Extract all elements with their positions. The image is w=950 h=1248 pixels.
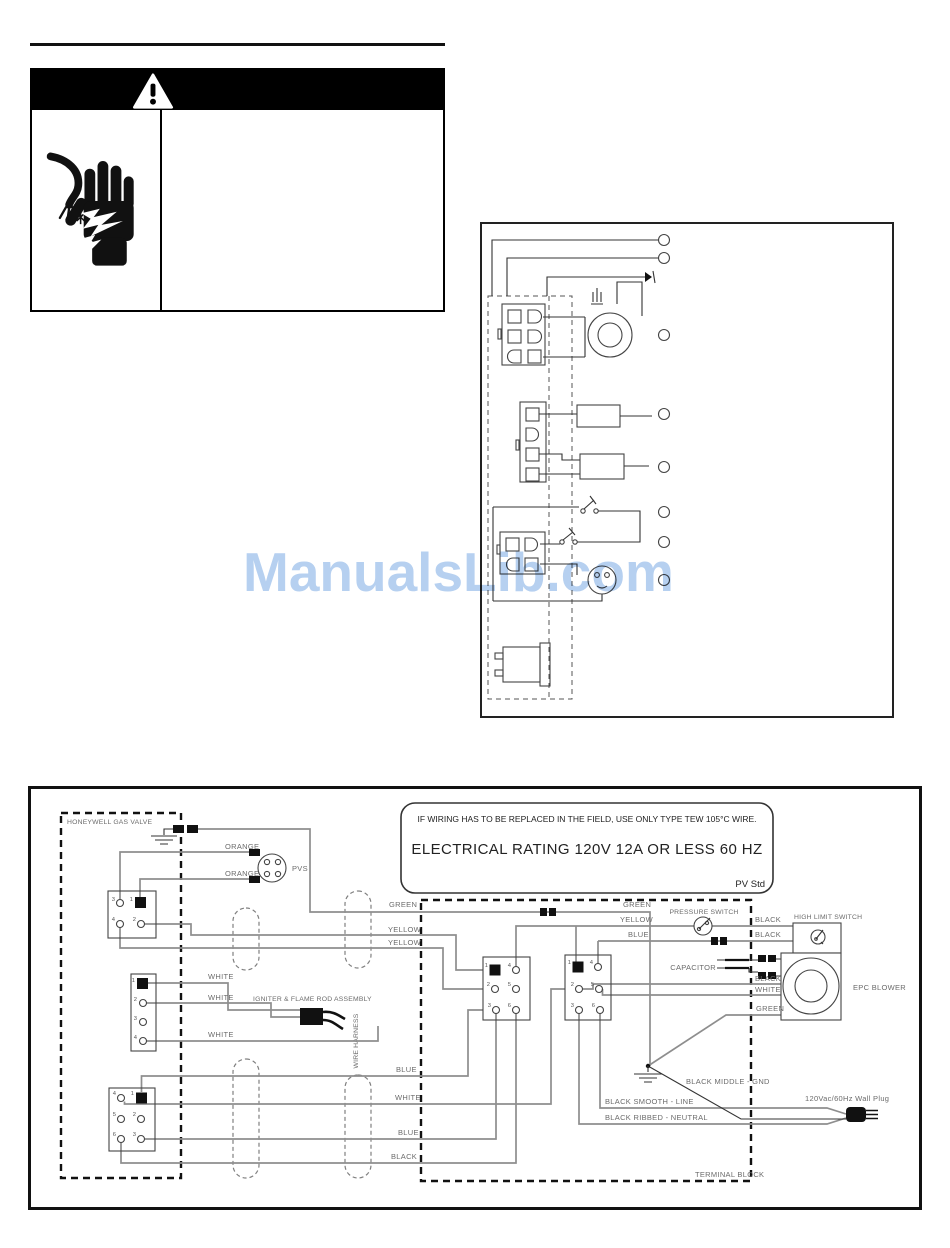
igniter-plug-icons	[539, 405, 652, 479]
pin-label: 3	[133, 1132, 136, 1138]
warning-icon-cell	[32, 110, 162, 312]
capacitor-label: CAPACITOR	[670, 963, 716, 972]
wire-label-yellow2: YELLOW	[388, 938, 422, 947]
epc-blower-icon	[781, 953, 841, 1020]
callout-markers	[659, 235, 670, 586]
wire-label-blue1: BLUE	[396, 1065, 417, 1074]
manualslib-watermark: ManualsLib.com	[243, 540, 674, 604]
pin-label: 3	[134, 1016, 137, 1022]
epc-blower-label: EPC BLOWER	[853, 983, 906, 992]
pin-label: 5	[591, 982, 594, 988]
wire-label-green-blower: GREEN	[756, 1004, 784, 1013]
pin-label: 3	[112, 897, 115, 903]
power-plug-icon	[495, 643, 550, 686]
wiring-diagram-panel: HONEYWELL GAS VALVE TERMINAL BLOCK WIRE …	[28, 786, 922, 1210]
warning-triangle-icon	[128, 73, 178, 109]
terminal-block-label: TERMINAL BLOCK	[695, 1170, 764, 1179]
high-limit-label: HIGH LIMIT SWITCH	[794, 914, 862, 921]
wire-bundle-pills	[233, 891, 371, 1178]
pin-label: 2	[133, 917, 136, 923]
wire-label-green-left: GREEN	[389, 900, 417, 909]
pressure-switch-icon	[694, 917, 712, 935]
pin-label: 1	[568, 960, 571, 966]
notice-line1: IF WIRING HAS TO BE REPLACED IN THE FIEL…	[417, 814, 756, 824]
wire-label-black-blower: BLACK	[755, 974, 781, 983]
wire-label-white4: WHITE	[395, 1093, 421, 1102]
capacitor-icon	[725, 960, 749, 968]
pin-label: 2	[571, 982, 574, 988]
pin-label: 2	[133, 1112, 136, 1118]
wire-label-black4: BLACK	[391, 1152, 417, 1161]
wall-plug-icon	[846, 1107, 878, 1122]
wiring-diagram: HONEYWELL GAS VALVE TERMINAL BLOCK WIRE …	[31, 789, 919, 1207]
warning-body	[32, 110, 443, 312]
notice-corner: PV Std	[735, 879, 765, 890]
pin-label: 4	[113, 1091, 117, 1097]
warning-text-cell	[162, 110, 443, 312]
pin-label: 1	[130, 897, 133, 903]
wire-label-white-blower: WHITE	[755, 985, 781, 994]
wire-label-white2: WHITE	[208, 993, 234, 1002]
tb-left-connector: 1 4 2 5 3 6	[483, 957, 530, 1020]
pin-label: 2	[134, 997, 137, 1003]
pin-label: 6	[113, 1132, 116, 1138]
pin-label: 6	[592, 1003, 595, 1009]
pin-label: 4	[112, 917, 116, 923]
wire-label-yellow-tb: YELLOW	[620, 915, 654, 924]
gas-valve-label: HONEYWELL GAS VALVE	[67, 819, 153, 826]
wire-label-black-ribbed: BLACK RIBBED - NEUTRAL	[605, 1113, 708, 1122]
pin-label: 6	[508, 1003, 511, 1009]
lower-left-connector: 4 1 5 2 6 3	[109, 1088, 155, 1151]
wire-label-orange1: ORANGE	[225, 842, 259, 851]
wire-label-orange2: ORANGE	[225, 869, 259, 878]
wall-plug-label: 120Vac/60Hz Wall Plug	[805, 1094, 889, 1103]
component-legend-panel	[480, 222, 894, 718]
blower-icon	[543, 282, 642, 357]
pressure-switch-label: PRESSURE SWITCH	[669, 909, 738, 916]
pin-label: 4	[134, 1035, 138, 1041]
notice-box: IF WIRING HAS TO BE REPLACED IN THE FIEL…	[401, 803, 773, 893]
six-pin-connector-icon	[498, 304, 545, 365]
pin-label: 3	[488, 1003, 491, 1009]
wire-label-white3: WHITE	[208, 1030, 234, 1039]
pin-label: 4	[508, 963, 512, 969]
pvs-label: PVS	[292, 864, 308, 873]
wire-label-blue-tb: BLUE	[628, 930, 649, 939]
igniter-label: IGNITER & FLAME ROD ASSEMBLY	[253, 996, 372, 1003]
igniter-assembly-icon	[300, 1008, 345, 1029]
electric-shock-hand-icon	[46, 141, 146, 281]
wire-label-black-smooth: BLACK SMOOTH - LINE	[605, 1097, 694, 1106]
pin-label: 2	[487, 982, 490, 988]
warning-header	[32, 70, 443, 110]
ground-node-icon	[634, 1064, 662, 1082]
pin-label: 5	[113, 1112, 116, 1118]
pin-label: 5	[508, 982, 511, 988]
gas-valve-connector: 3 1 4 2	[108, 891, 156, 938]
wire-label-green-tb: GREEN	[623, 900, 651, 909]
top-rule	[30, 43, 445, 46]
notice-line2: ELECTRICAL RATING 120V 12A OR LESS 60 HZ	[411, 841, 762, 858]
high-limit-switch-icon	[793, 923, 841, 953]
warning-box	[30, 68, 445, 312]
pin-label: 1	[485, 963, 488, 969]
wire-label-black-hl2: BLACK	[755, 930, 781, 939]
igniter-connector: 1 2 3 4	[131, 974, 156, 1051]
wire-label-black-hl1: BLACK	[755, 915, 781, 924]
pin-label: 4	[590, 960, 594, 966]
manual-page: HONEYWELL GAS VALVE TERMINAL BLOCK WIRE …	[0, 0, 950, 1248]
component-legend-drawing	[482, 224, 892, 716]
top-leads	[492, 240, 658, 296]
pin-label: 1	[132, 978, 135, 984]
wire-label-white1: WHITE	[208, 972, 234, 981]
pin-label: 3	[571, 1003, 574, 1009]
wire-label-yellow1: YELLOW	[388, 925, 422, 934]
gas-valve-outline	[61, 813, 181, 1178]
wire-label-black-middle: BLACK MIDDLE - GND	[686, 1077, 770, 1086]
wire-label-blue2: BLUE	[398, 1128, 419, 1137]
tb-right-connector: 1 4 2 5 3 6	[565, 955, 611, 1020]
pin-label: 1	[131, 1091, 134, 1097]
